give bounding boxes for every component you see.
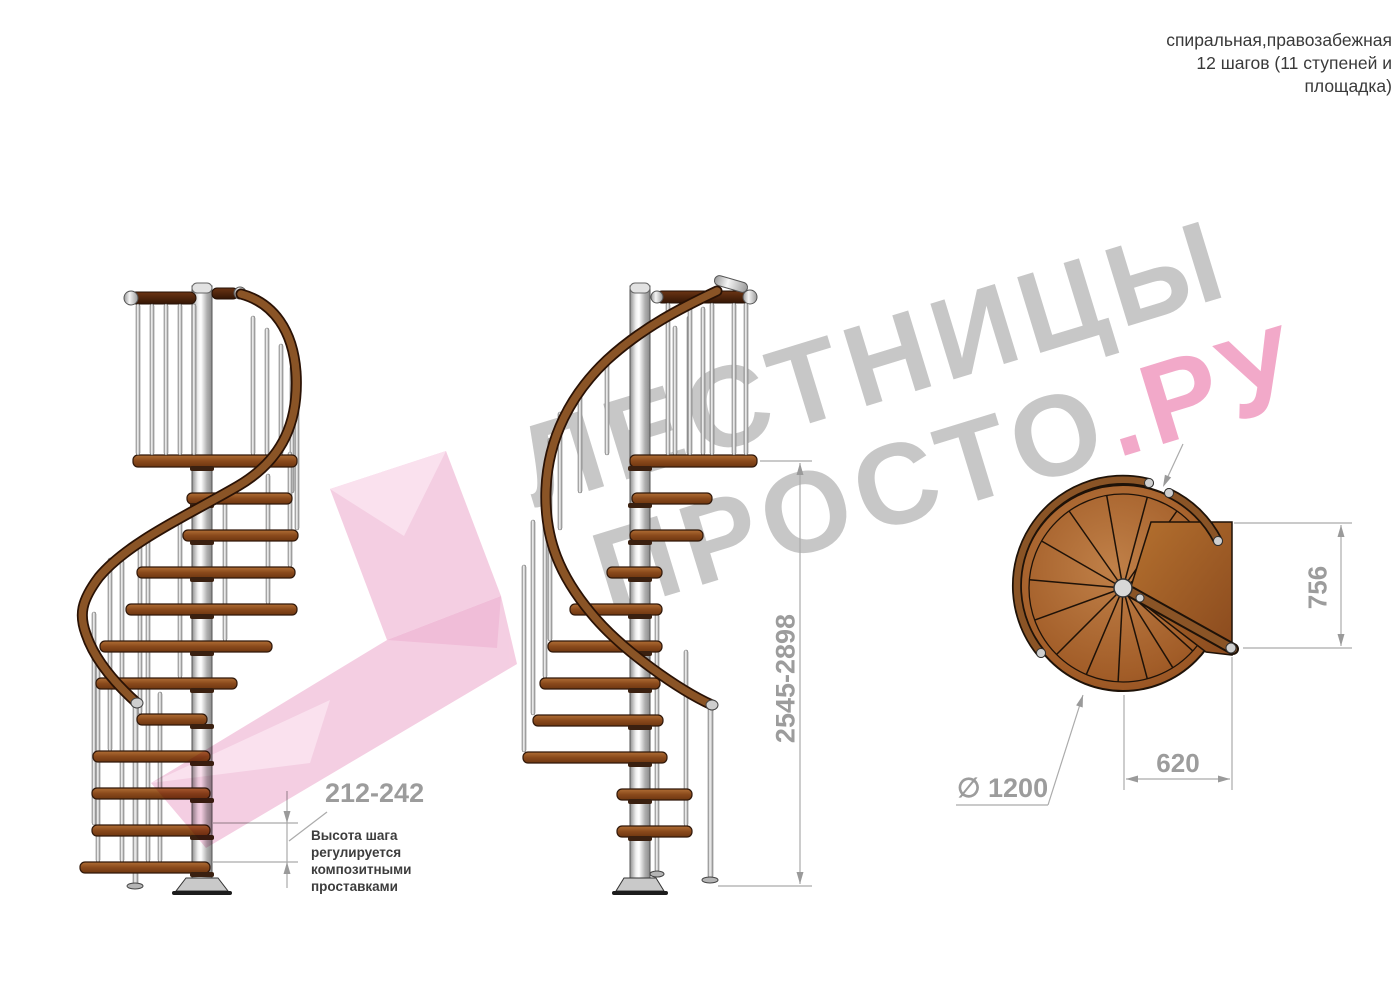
title-line2: 12 шагов (11 ступеней и [1032,52,1392,75]
plan-arc-cap-1 [1145,479,1154,488]
staircase-drawing [0,0,1400,1000]
plan-center-pole [1114,579,1132,597]
title-line3: площадка) [1032,75,1392,98]
title-block: спиральная,правозабежная 12 шагов (11 ст… [1032,29,1392,98]
center-side-view [522,275,757,895]
center-pole-cap [630,283,650,293]
center-pole-base-plate [612,891,668,895]
center-platform [630,455,757,467]
dim-platform-width-label: 620 [1118,748,1238,779]
center-handrail-end-cap [706,700,718,710]
left-handrail-end-cap [131,698,143,708]
left-side-view [80,283,299,895]
left-platform-rail [130,292,196,304]
center-newel-foot [702,877,718,883]
plan-arc-cap-2 [1165,489,1174,498]
dim-diameter-label: ∅ 1200 [957,773,1048,804]
plan-rail-pin [1136,594,1144,602]
drawing-page: ЛЕСТНИЦЫ ПРОСТО.РУ [0,0,1400,1000]
note-line1: Высота шага [311,827,411,844]
note-line3: композитными [311,861,411,878]
left-newel-foot [127,883,143,889]
center-pole-base [616,878,664,891]
left-pole-base-plate [172,891,232,895]
plan-view [1017,479,1236,692]
dim-platform-depth-label: 756 [1303,528,1334,648]
dim-total-height-label: 2545-2898 [771,559,802,799]
dim-step-height-label: 212-242 [325,778,424,809]
center-rail-ball-left [651,291,663,303]
left-rail-balusters [136,304,196,455]
center-rail-balusters [666,303,748,455]
center-baluster-foot [650,871,664,877]
step-height-note: Высота шага регулируется композитными пр… [311,827,411,895]
plan-rail-cap [1226,643,1236,653]
left-pole-base [176,878,228,891]
left-pole-cap [192,283,212,293]
note-line4: проставками [311,878,411,895]
note-line2: регулируется [311,844,411,861]
left-rail-ball [124,291,138,305]
plan-arc-cap-4 [1214,537,1223,546]
title-line1: спиральная,правозабежная [1032,29,1392,52]
plan-arc-cap-3 [1037,649,1046,658]
